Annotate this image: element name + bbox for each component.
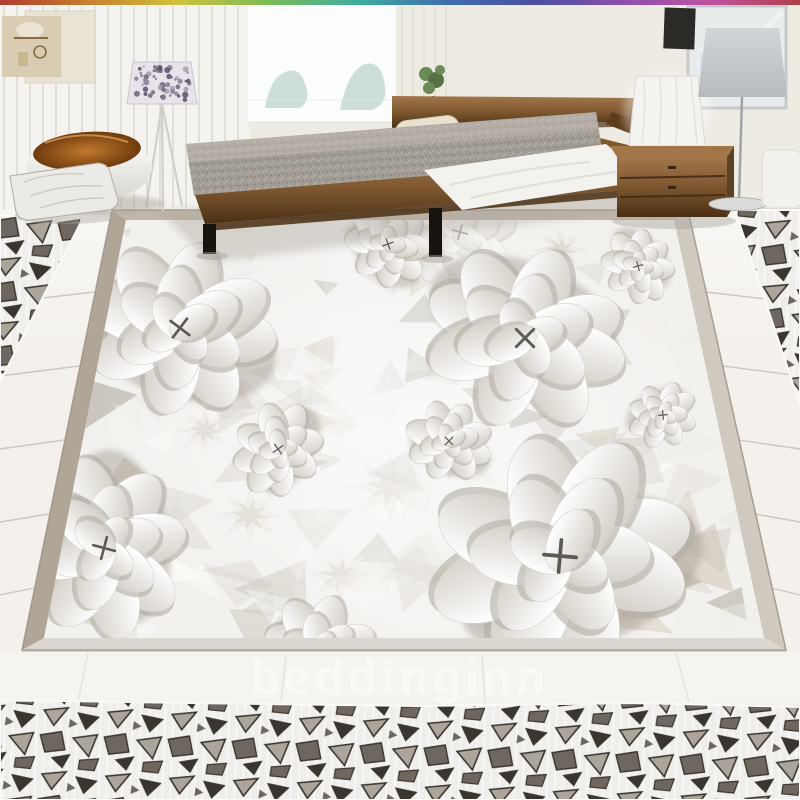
wall-art-dark bbox=[663, 7, 695, 49]
canvas-splotch bbox=[16, 22, 44, 38]
table-lamp bbox=[623, 72, 711, 152]
scene: beddinginn bbox=[0, 0, 800, 800]
rainbow-strip bbox=[0, 0, 800, 5]
floor-lamp-shade bbox=[698, 28, 787, 97]
mural-border-bottom bbox=[22, 638, 786, 650]
bed-leg bbox=[203, 224, 216, 254]
product-photo-3d-floor-mural: beddinginn bbox=[0, 0, 800, 800]
plant-leaf bbox=[435, 65, 445, 75]
tripod-leg bbox=[162, 104, 163, 211]
nightstand-top bbox=[610, 146, 734, 157]
window-sill bbox=[248, 121, 396, 127]
leg-shadow bbox=[196, 252, 228, 260]
wall-art bbox=[2, 11, 95, 83]
leg-shadow bbox=[421, 255, 453, 263]
nightstand bbox=[610, 146, 736, 229]
bed-leg bbox=[429, 208, 442, 257]
window bbox=[248, 5, 396, 127]
drawer-handle bbox=[668, 186, 676, 189]
drawer-handle bbox=[668, 166, 676, 169]
plant-leaf bbox=[423, 82, 435, 94]
watermark: beddinginn bbox=[251, 652, 550, 705]
canvas-motif-block bbox=[18, 52, 28, 66]
carpet-bottom-band bbox=[0, 700, 800, 800]
side-table bbox=[762, 150, 800, 208]
floor-lamp-base bbox=[709, 198, 767, 211]
